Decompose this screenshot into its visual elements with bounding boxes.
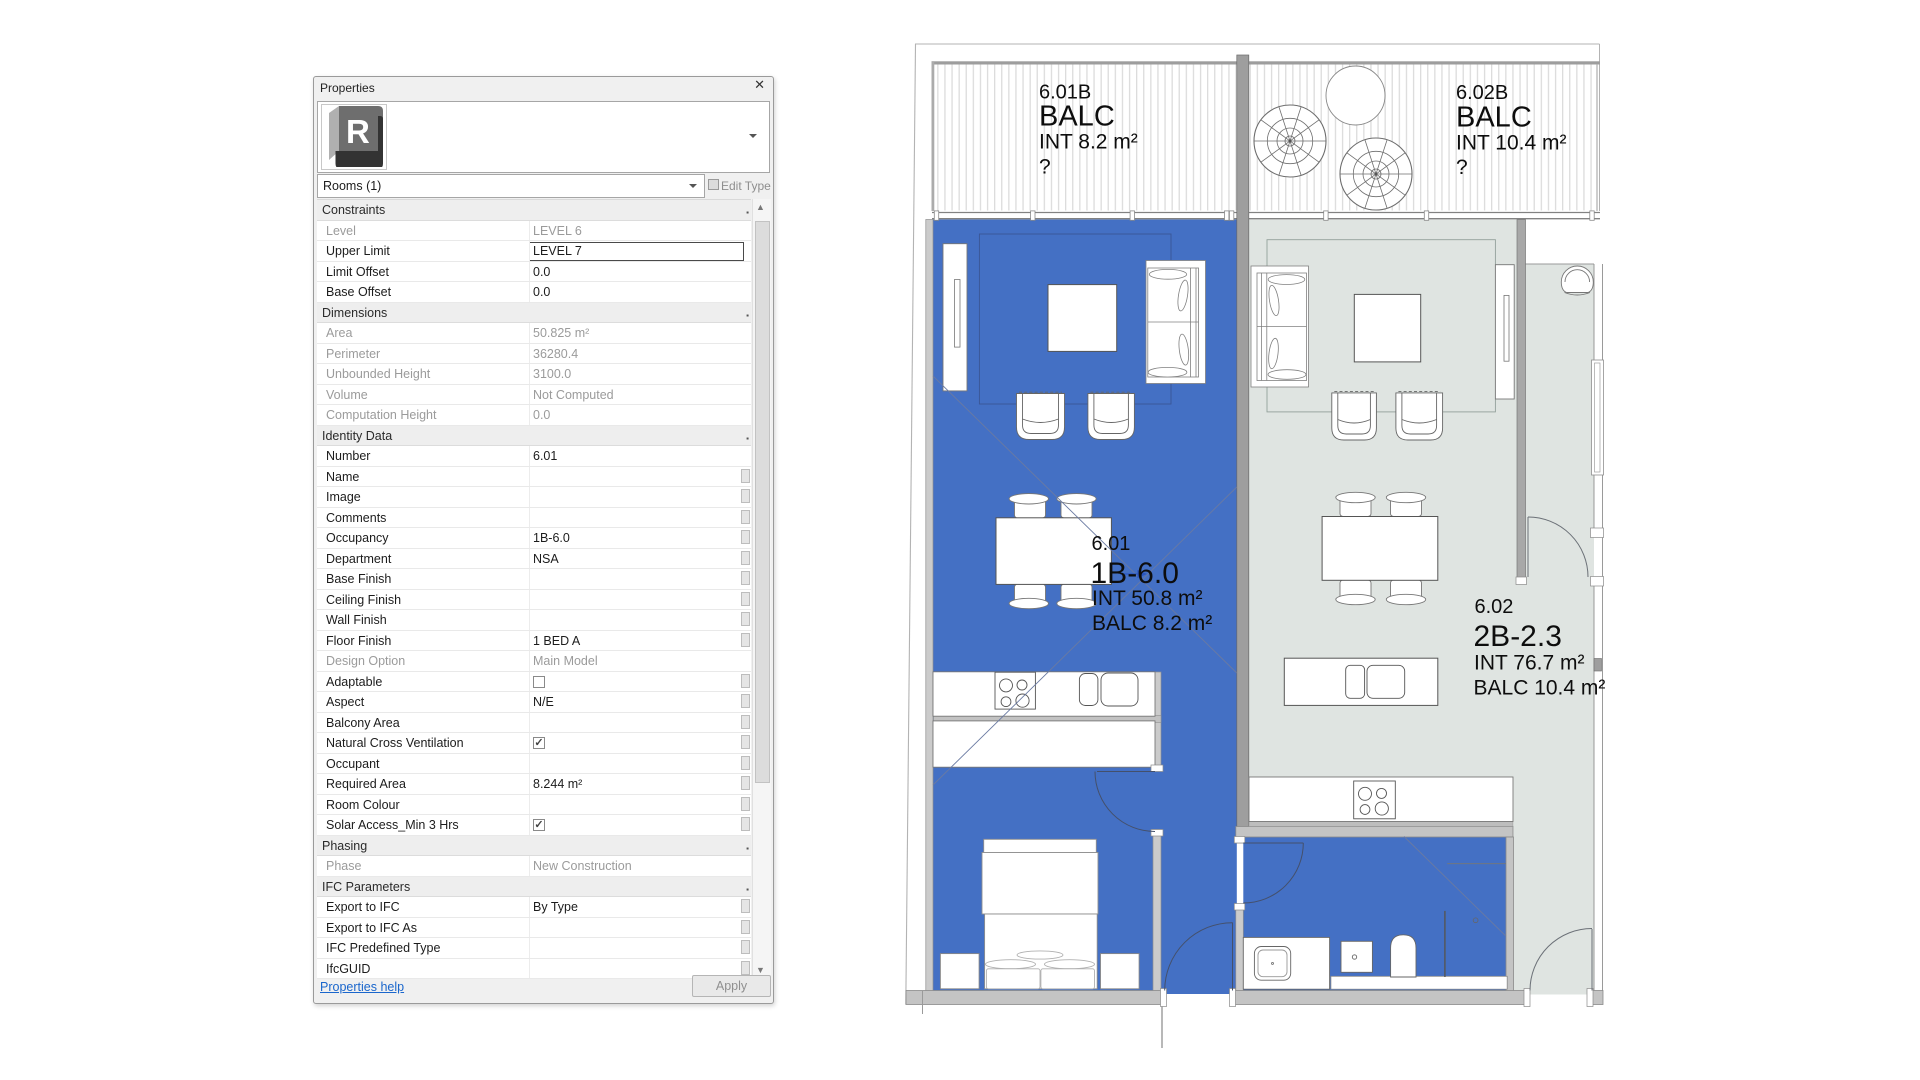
svg-text:INT 50.8 m²: INT 50.8 m² — [1092, 587, 1202, 610]
svg-text:BALC: BALC — [1456, 102, 1532, 134]
svg-text:BALC 8.2 m²: BALC 8.2 m² — [1092, 612, 1212, 635]
svg-text:BALC: BALC — [1039, 101, 1115, 133]
svg-text:1B-6.0: 1B-6.0 — [1091, 557, 1179, 590]
svg-text:INT 8.2 m²: INT 8.2 m² — [1039, 131, 1138, 154]
svg-text:6.01: 6.01 — [1092, 533, 1131, 555]
svg-text:?: ? — [1456, 156, 1468, 179]
svg-text:2B-2.3: 2B-2.3 — [1474, 620, 1562, 653]
svg-text:INT 10.4 m²: INT 10.4 m² — [1456, 132, 1566, 155]
svg-text:R: R — [346, 113, 370, 150]
svg-text:INT 76.7 m²: INT 76.7 m² — [1474, 652, 1584, 675]
svg-text:?: ? — [1039, 156, 1051, 179]
svg-text:6.02: 6.02 — [1475, 596, 1514, 618]
svg-text:BALC 10.4 m²: BALC 10.4 m² — [1474, 677, 1606, 700]
